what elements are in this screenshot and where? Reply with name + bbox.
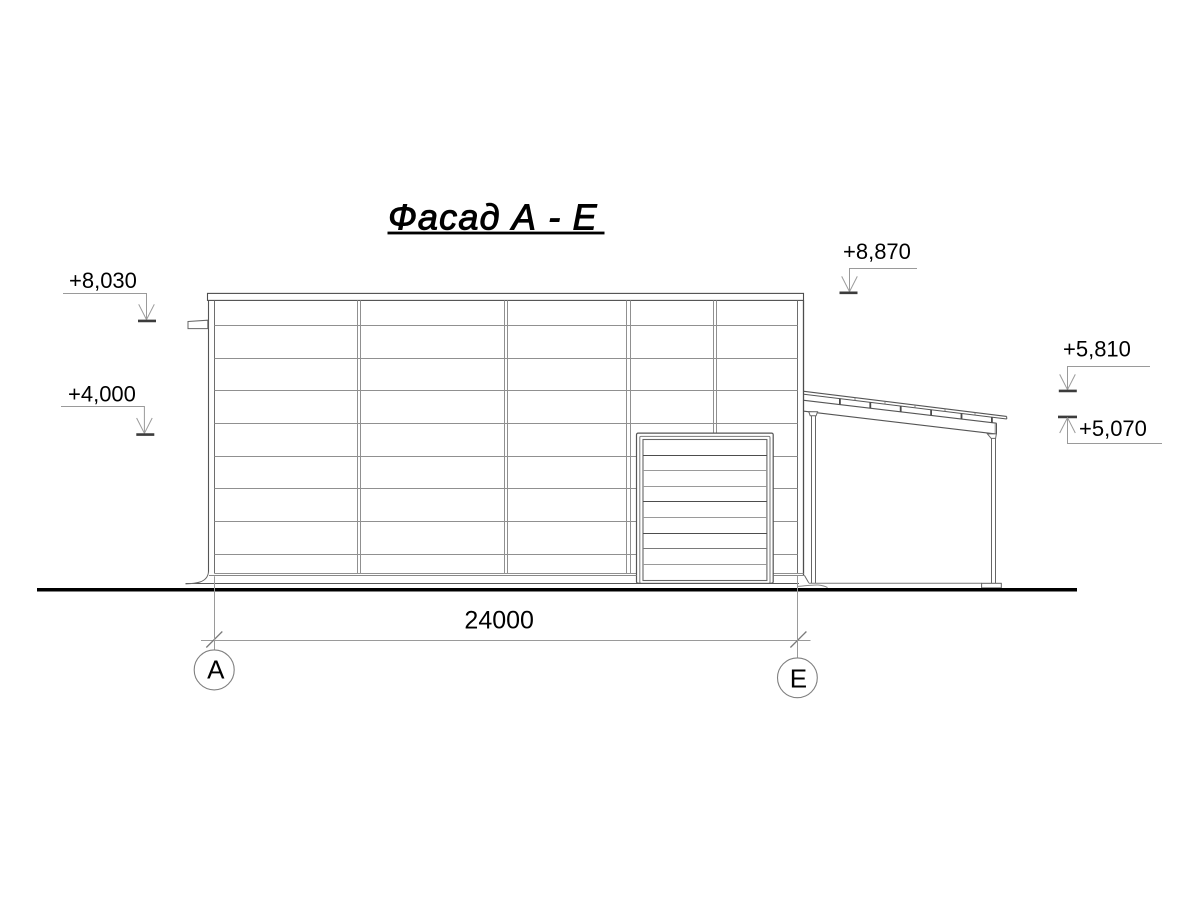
svg-text:+8,030: +8,030 [69,268,137,293]
svg-text:+8,870: +8,870 [843,239,911,264]
svg-text:24000: 24000 [464,606,534,634]
svg-text:А: А [207,654,225,684]
svg-text:+5,810: +5,810 [1063,336,1131,361]
svg-text:+5,070: +5,070 [1079,416,1147,441]
svg-text:+4,000: +4,000 [68,381,136,406]
svg-text:Фасад А - Е: Фасад А - Е [388,197,598,238]
svg-text:Е: Е [790,664,807,694]
